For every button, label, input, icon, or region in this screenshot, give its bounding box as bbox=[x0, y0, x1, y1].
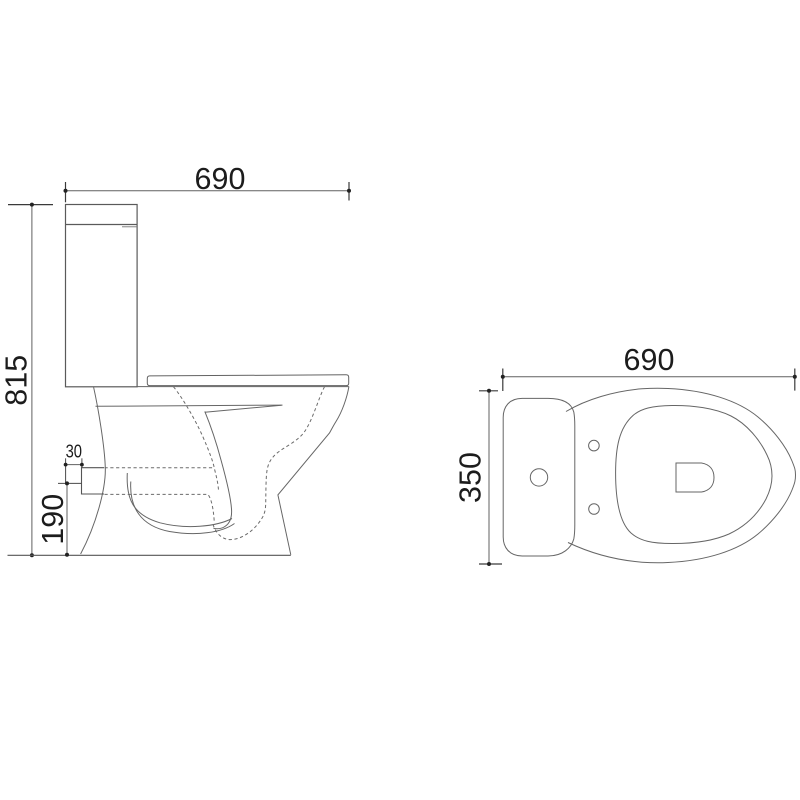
svg-text:30: 30 bbox=[66, 441, 82, 462]
svg-text:690: 690 bbox=[624, 343, 675, 377]
svg-text:190: 190 bbox=[36, 494, 70, 545]
svg-text:815: 815 bbox=[0, 355, 34, 406]
svg-text:690: 690 bbox=[195, 162, 246, 196]
svg-text:350: 350 bbox=[453, 452, 487, 503]
